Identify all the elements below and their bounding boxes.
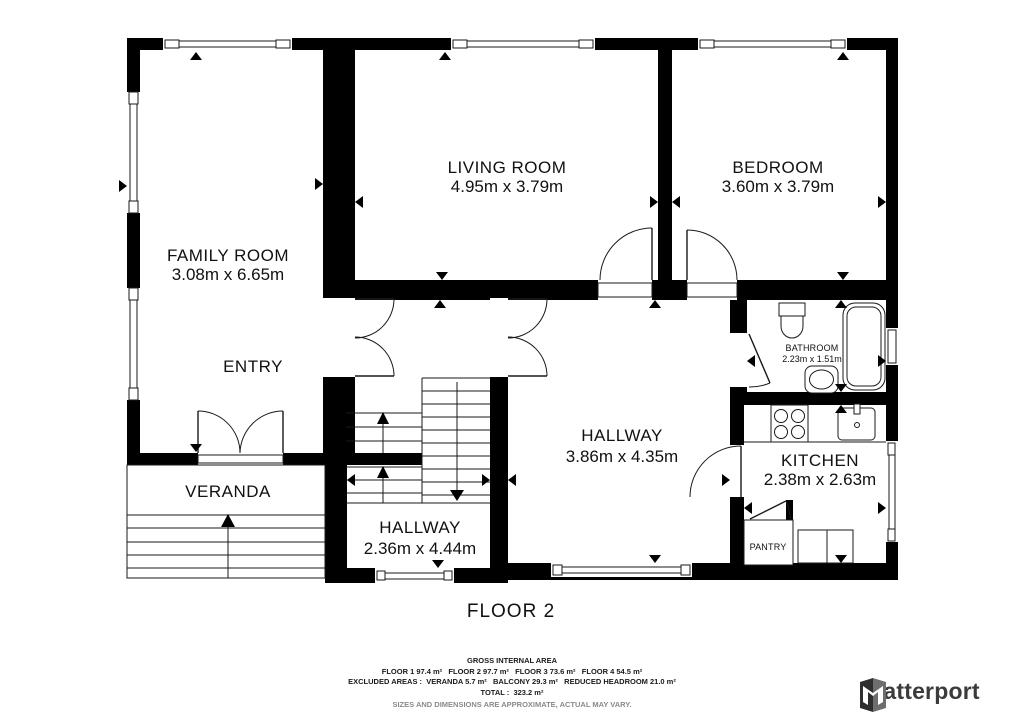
stairs-up-arrow-lower: [377, 466, 389, 503]
window-familyroom-left-upper: [127, 92, 140, 213]
bathroom-sink-icon: [805, 366, 838, 393]
room-dims: 2.36m x 4.44m: [364, 539, 476, 558]
wall-mid-horizontal-b: [652, 280, 687, 300]
room-label: HALLWAY: [581, 426, 663, 445]
door-pantry: [750, 501, 790, 519]
room-veranda-label: VERANDA: [185, 482, 271, 501]
wall-familyroom-right: [323, 50, 355, 453]
door-entry-double: [198, 411, 283, 465]
room-dims: 2.23m x 1.51m: [782, 354, 842, 364]
window-bedroom-top: [698, 38, 847, 50]
door-kitchen: [690, 445, 744, 497]
stairs-up-arrow-upper: [377, 412, 389, 453]
room-dims: 4.95m x 3.79m: [451, 177, 563, 196]
wall-living-bedroom-divider: [658, 50, 672, 280]
door-living-room: [598, 228, 652, 300]
matterport-logo: Matterport: [858, 678, 980, 705]
window-lower-hallway-bottom: [375, 568, 454, 583]
kitchen-island: [798, 530, 853, 563]
room-dims: 3.86m x 4.35m: [566, 447, 678, 466]
room-kitchen: KITCHEN 2.38m x 2.63m: [764, 451, 876, 489]
window-familyroom-left-lower: [127, 288, 140, 400]
door-landing-double-left: [323, 298, 394, 377]
door-hallway-double: [490, 298, 547, 377]
room-hallway-main: HALLWAY 3.86m x 4.35m: [566, 426, 678, 466]
room-label: FAMILY ROOM: [167, 246, 289, 265]
room-pantry-label: PANTRY: [750, 542, 787, 552]
matterport-logo-icon: [858, 678, 888, 712]
window-bathroom-right: [886, 328, 898, 365]
room-label: BEDROOM: [732, 158, 823, 177]
room-family-room: FAMILY ROOM 3.08m x 6.65m: [167, 246, 289, 284]
floor-label: FLOOR 2: [467, 601, 555, 622]
wall-bath-kitchen-divider: [730, 392, 898, 405]
floorplan-page: FAMILY ROOM 3.08m x 6.65m ENTRY VERANDA …: [0, 0, 1024, 724]
window-livingroom-top: [451, 38, 595, 50]
room-bathroom: BATHROOM 2.23m x 1.51m: [782, 343, 842, 364]
room-dims: 3.60m x 3.79m: [722, 177, 834, 196]
room-label: BATHROOM: [786, 343, 839, 353]
window-main-hallway-bottom: [551, 563, 692, 577]
wall-mid-horizontal-a: [323, 280, 598, 300]
room-dims: 3.08m x 6.65m: [172, 265, 284, 284]
room-label: KITCHEN: [781, 451, 859, 470]
toilet-icon: [779, 303, 805, 338]
room-label: LIVING ROOM: [448, 158, 567, 177]
gross-internal-area-title: GROSS INTERNAL AREA: [0, 656, 1024, 667]
door-bedroom: [687, 230, 737, 300]
room-living-room: LIVING ROOM 4.95m x 3.79m: [448, 158, 567, 196]
wall-veranda-right: [325, 453, 347, 583]
footer-floors-line: FLOOR 1 97.4 m² FLOOR 2 97.7 m² FLOOR 3 …: [0, 667, 1024, 678]
window-kitchen-right: [886, 441, 898, 542]
room-entry-label: ENTRY: [223, 357, 283, 376]
stove-icon: [771, 405, 808, 442]
room-bedroom: BEDROOM 3.60m x 3.79m: [722, 158, 834, 196]
stairs-down-arrow: [450, 382, 464, 501]
wall-mid-horizontal-c: [737, 280, 898, 300]
floorplan-svg: FAMILY ROOM 3.08m x 6.65m ENTRY VERANDA …: [0, 0, 1024, 724]
stairs: [346, 378, 490, 503]
window-familyroom-top: [163, 38, 292, 50]
room-hallway-lower: HALLWAY 2.36m x 4.44m: [364, 518, 476, 558]
bathtub-icon: [843, 303, 885, 390]
room-dims: 2.38m x 2.63m: [764, 470, 876, 489]
room-label: HALLWAY: [379, 518, 461, 537]
